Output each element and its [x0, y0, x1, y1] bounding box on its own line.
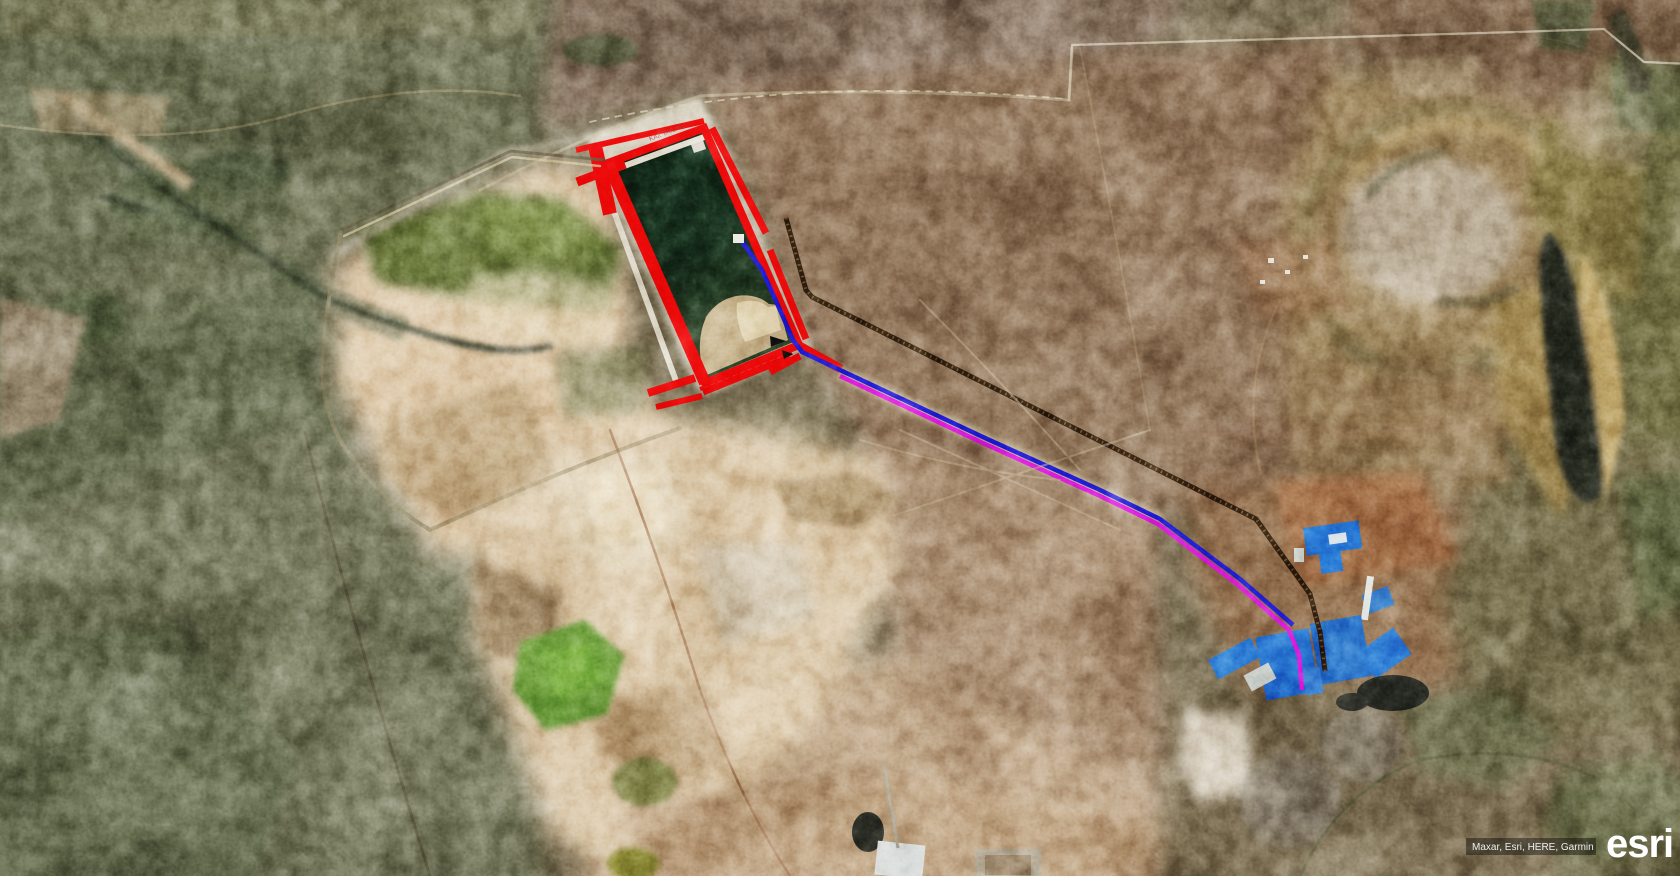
svg-text:esri: esri — [1606, 822, 1673, 866]
svg-text:Maxar, Esri, HERE, Garmin: Maxar, Esri, HERE, Garmin — [1472, 842, 1594, 853]
